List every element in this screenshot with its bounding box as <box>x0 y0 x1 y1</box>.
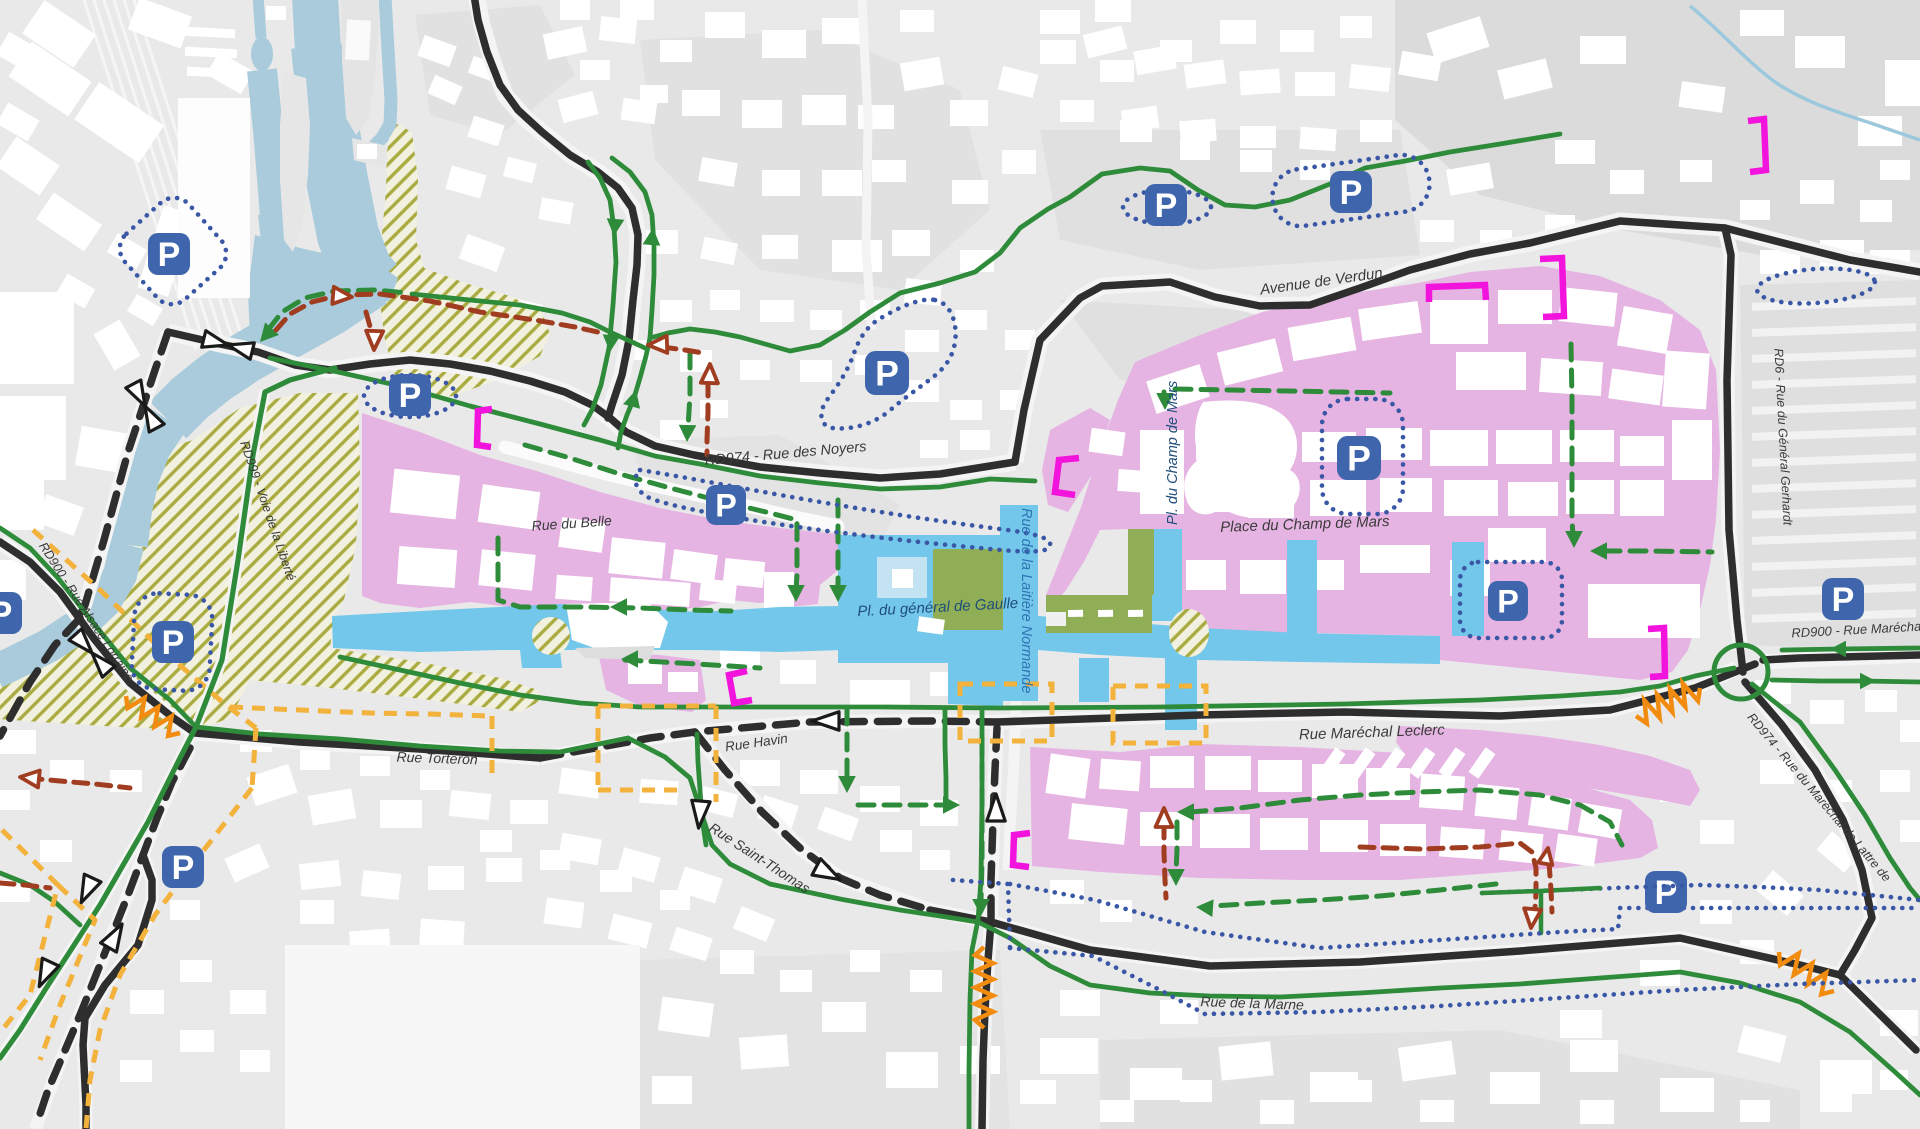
svg-text:P: P <box>875 354 899 394</box>
svg-text:P: P <box>715 487 737 523</box>
svg-text:P: P <box>172 849 195 887</box>
svg-text:P: P <box>1155 187 1178 225</box>
svg-text:Rue Torteron: Rue Torteron <box>396 749 478 768</box>
svg-text:P: P <box>1347 439 1371 479</box>
svg-text:P: P <box>1655 874 1678 912</box>
svg-text:Rue de la Laitière Normande: Rue de la Laitière Normande <box>1018 508 1034 693</box>
svg-text:P: P <box>399 377 422 415</box>
svg-text:Pl. du Champ de Mars: Pl. du Champ de Mars <box>1165 381 1181 525</box>
svg-text:P: P <box>0 595 12 633</box>
svg-text:P: P <box>162 624 185 662</box>
svg-text:P: P <box>1497 583 1519 619</box>
svg-text:P: P <box>158 236 181 274</box>
svg-text:P: P <box>1340 174 1363 212</box>
svg-text:P: P <box>1832 581 1855 619</box>
